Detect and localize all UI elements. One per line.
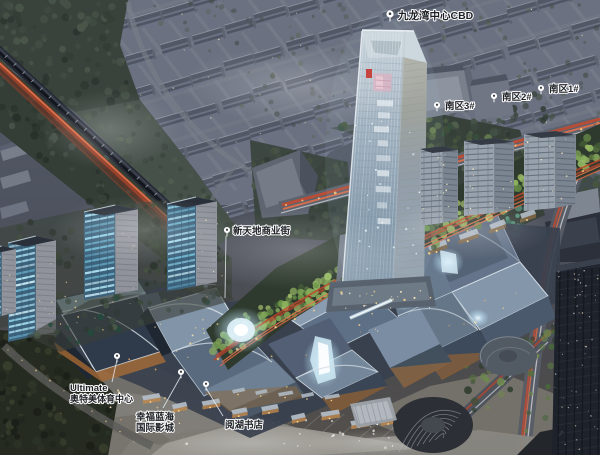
svg-text:南区3#: 南区3# [445,100,475,112]
svg-text:奥特美体育中心: 奥特美体育中心 [69,393,133,404]
svg-text:阅湖书店: 阅湖书店 [225,419,264,431]
svg-text:南区2#: 南区2# [502,91,532,103]
svg-text:幸福蓝海: 幸福蓝海 [136,411,175,423]
svg-text:Ultimate: Ultimate [70,383,107,394]
svg-text:南区1#: 南区1# [549,83,579,95]
svg-text:国际影城: 国际影城 [136,422,175,434]
svg-text:九龙湾中心CBD: 九龙湾中心CBD [397,9,474,22]
svg-text:新天地商业街: 新天地商业街 [233,225,291,237]
